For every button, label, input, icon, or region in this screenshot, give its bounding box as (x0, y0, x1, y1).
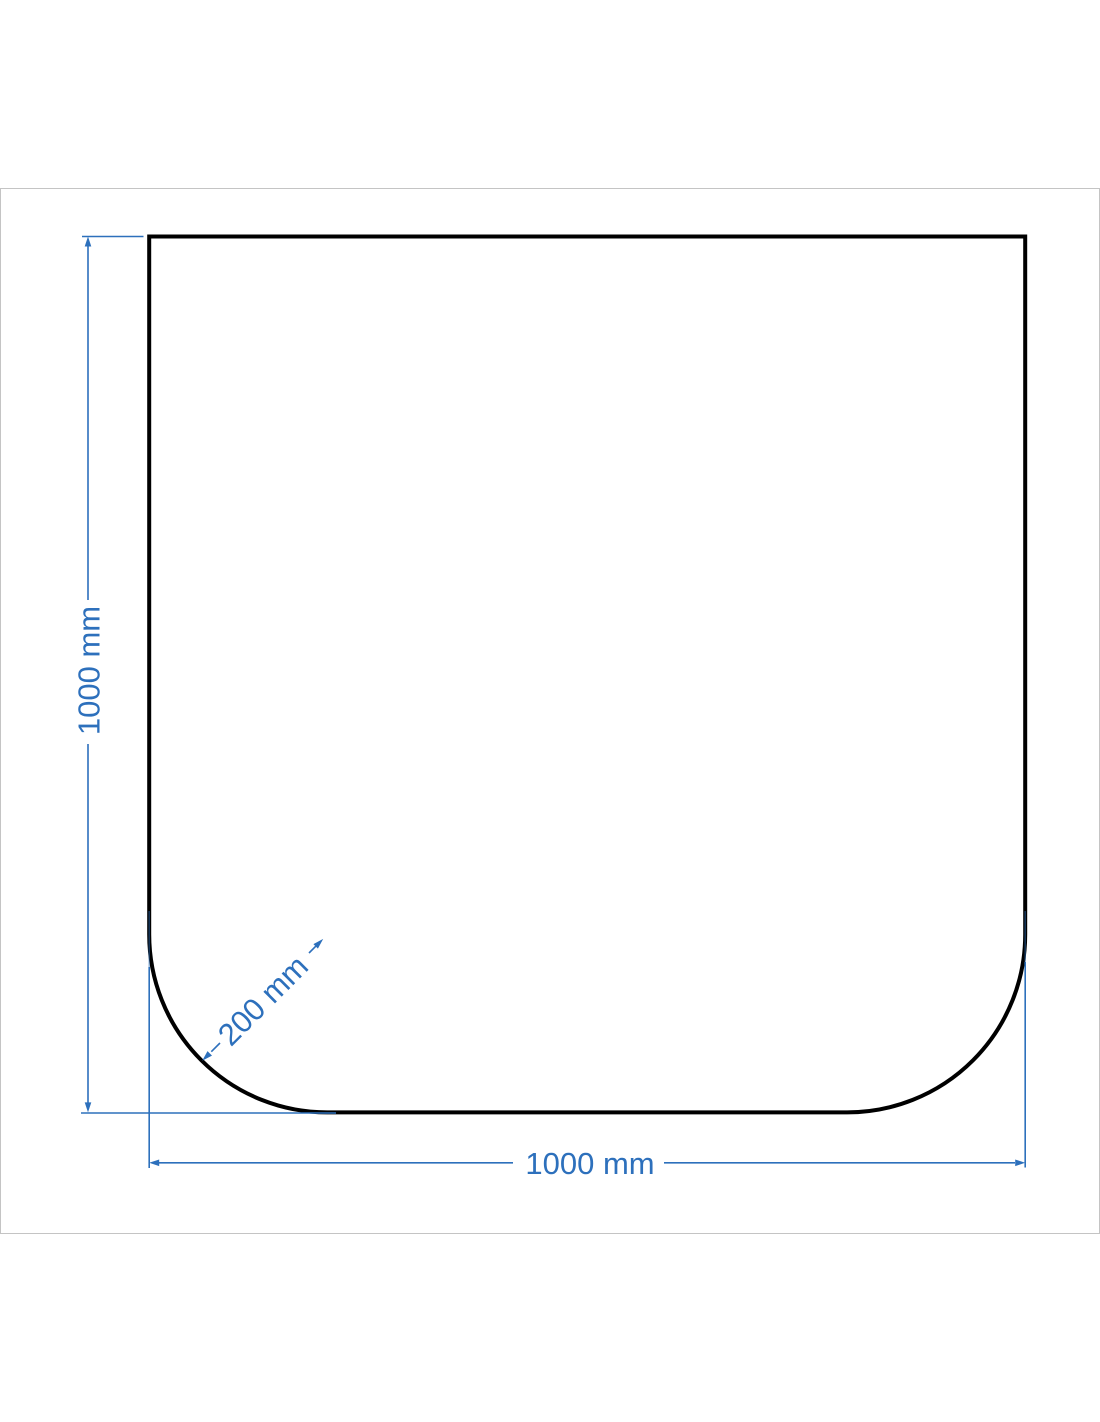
svg-text:200 mm: 200 mm (211, 948, 315, 1052)
svg-text:1000 mm: 1000 mm (525, 1146, 654, 1181)
svg-text:1000 mm: 1000 mm (71, 606, 106, 735)
